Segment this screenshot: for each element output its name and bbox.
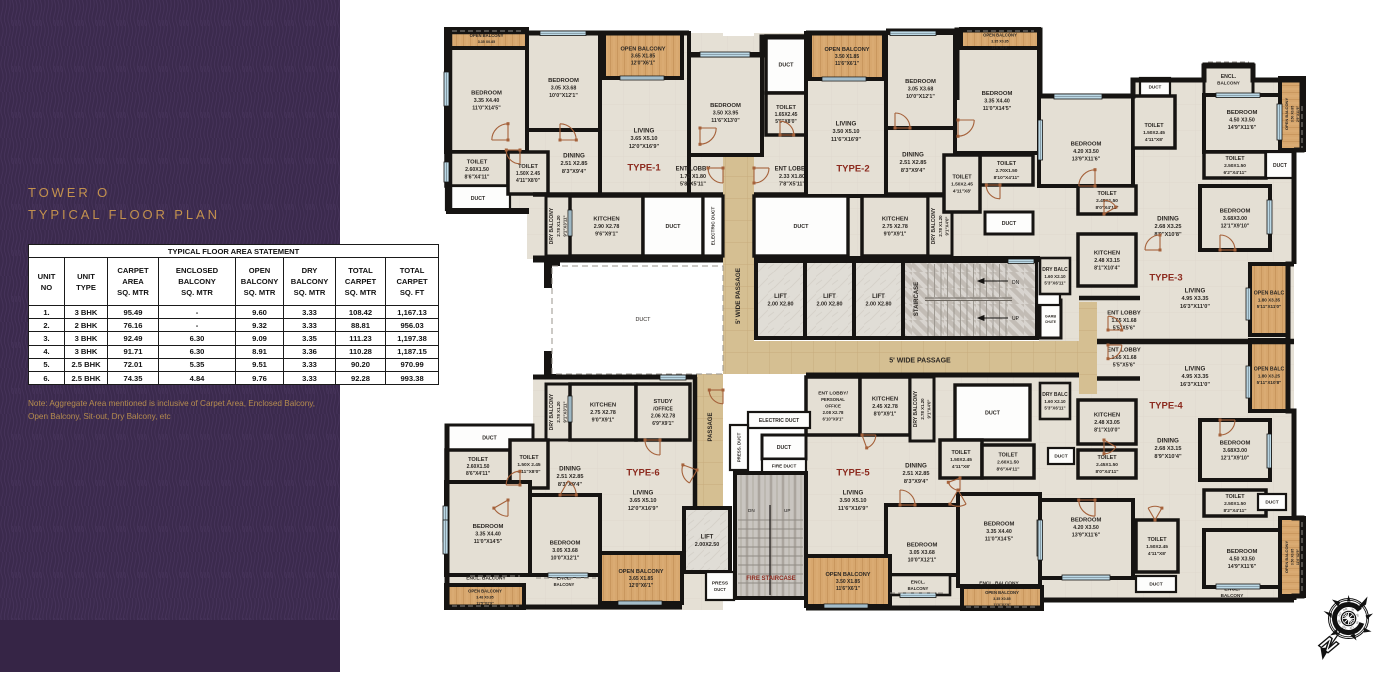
svg-text:KITCHEN2.48 X3.158'1"X10'4": KITCHEN2.48 X3.158'1"X10'4" xyxy=(1094,251,1120,272)
svg-text:DUCT: DUCT xyxy=(794,224,810,230)
svg-text:DUCT: DUCT xyxy=(666,224,682,230)
svg-text:DUCT: DUCT xyxy=(471,196,486,202)
svg-text:TOILET1.50X2.454'11"X8': TOILET1.50X2.454'11"X8' xyxy=(1146,537,1168,557)
svg-text:DUCT: DUCT xyxy=(636,317,652,323)
svg-text:BEDROOM4.50 X3.5014'9"X11'6": BEDROOM4.50 X3.5014'9"X11'6" xyxy=(1227,110,1258,131)
svg-text:DN: DN xyxy=(1012,280,1020,286)
svg-text:BEDROOM3.05 X3.6810'0"X12'1": BEDROOM3.05 X3.6810'0"X12'1" xyxy=(550,541,581,562)
svg-text:BEDROOM4.20 X3.5013'9"X11'6": BEDROOM4.20 X3.5013'9"X11'6" xyxy=(1071,518,1102,539)
svg-text:5' WIDE PASSAGE: 5' WIDE PASSAGE xyxy=(735,267,742,324)
svg-text:TOILET1.50X2.454'11"X8': TOILET1.50X2.454'11"X8' xyxy=(951,174,973,194)
svg-text:BEDROOM3.05 X3.6810'0"X12'1": BEDROOM3.05 X3.6810'0"X12'1" xyxy=(907,543,938,564)
svg-text:DINING2.51 X2.858'3"X9'4": DINING2.51 X2.858'3"X9'4" xyxy=(556,465,583,488)
svg-text:BEDROOM3.05 X3.6810'0"X12'1": BEDROOM3.05 X3.6810'0"X12'1" xyxy=(548,78,579,99)
svg-text:DUCT: DUCT xyxy=(1002,221,1017,227)
svg-text:UP: UP xyxy=(1012,316,1020,322)
svg-text:GARBCHUTE: GARBCHUTE xyxy=(1045,315,1056,324)
svg-text:ELECTRIC DUCT: ELECTRIC DUCT xyxy=(759,418,799,424)
svg-text:KITCHEN2.75 X2.789'0"X9'1": KITCHEN2.75 X2.789'0"X9'1" xyxy=(590,403,616,424)
svg-text:TYPE-4: TYPE-4 xyxy=(1149,400,1183,411)
svg-text:DUCT: DUCT xyxy=(1265,500,1278,506)
svg-text:DINING2.68 X3.158'9"X10'4": DINING2.68 X3.158'9"X10'4" xyxy=(1154,437,1182,460)
svg-text:TOILET2.60X1.508'6"X4'11": TOILET2.60X1.508'6"X4'11" xyxy=(465,160,491,181)
svg-text:TOILET2.50X1.506'2"X4'11": TOILET2.50X1.506'2"X4'11" xyxy=(1223,156,1246,176)
svg-text:TYPE-3: TYPE-3 xyxy=(1149,272,1182,283)
svg-text:KITCHEN2.90 X2.789'6"X9'1": KITCHEN2.90 X2.789'6"X9'1" xyxy=(593,217,619,238)
svg-text:BEDROOM4.20 X3.5013'9"X11'6": BEDROOM4.20 X3.5013'9"X11'6" xyxy=(1071,142,1102,163)
svg-text:5' WIDE PASSAGE: 5' WIDE PASSAGE xyxy=(889,357,951,364)
svg-text:BEDROOM3.35 X4.4011'0"X14'5": BEDROOM3.35 X4.4011'0"X14'5" xyxy=(471,91,502,112)
svg-text:BEDROOM3.50 X3.9511'6"X13'0": BEDROOM3.50 X3.9511'6"X13'0" xyxy=(710,103,741,124)
svg-text:TYPE-5: TYPE-5 xyxy=(836,467,870,478)
svg-text:KITCHEN2.45 X2.788'0"X9'1": KITCHEN2.45 X2.788'0"X9'1" xyxy=(872,397,898,418)
svg-text:TOILET2.50X1.508'2"X4'11": TOILET2.50X1.508'2"X4'11" xyxy=(1223,494,1246,514)
svg-text:DUCT: DUCT xyxy=(482,435,497,441)
svg-text:BEDROOM3.68X3.0012'1"X9'10": BEDROOM3.68X3.0012'1"X9'10" xyxy=(1220,209,1251,230)
svg-text:ELECTRIC DUCT: ELECTRIC DUCT xyxy=(711,207,717,246)
svg-text:TOILET2.45X1.508'0"X4'11": TOILET2.45X1.508'0"X4'11" xyxy=(1095,455,1118,475)
svg-text:DUCT: DUCT xyxy=(1149,85,1162,90)
svg-text:ENT LOBBY1.72 X1.805'8"X5'11": ENT LOBBY1.72 X1.805'8"X5'11" xyxy=(676,167,711,188)
svg-text:TOILET2.60X1.508'6"X4'11": TOILET2.60X1.508'6"X4'11" xyxy=(466,457,491,477)
svg-text:BEDROOM3.68X3.0012'1"X9'10": BEDROOM3.68X3.0012'1"X9'10" xyxy=(1220,441,1251,462)
svg-text:TOILET1.50X2.454'11"X8': TOILET1.50X2.454'11"X8' xyxy=(1143,123,1165,143)
svg-text:TOILET1.50X 2.454'11"X8'0": TOILET1.50X 2.454'11"X8'0" xyxy=(516,164,541,184)
svg-text:STAIRCASE: STAIRCASE xyxy=(914,282,920,316)
svg-text:TOILET2.60X1.508'6"X4'11": TOILET2.60X1.508'6"X4'11" xyxy=(996,452,1019,472)
svg-text:DUCT: DUCT xyxy=(777,445,792,451)
svg-text:BEDROOM3.05 X3.6810'0"X12'1": BEDROOM3.05 X3.6810'0"X12'1" xyxy=(905,79,936,100)
svg-text:DINING2.51 X2.858'3"X9'4": DINING2.51 X2.858'3"X9'4" xyxy=(902,462,929,485)
svg-text:DUCT: DUCT xyxy=(985,410,1001,416)
svg-text:ENCL. BALCONY: ENCL. BALCONY xyxy=(466,576,506,582)
svg-text:BEDROOM4.50 X3.5014'9"X11'6": BEDROOM4.50 X3.5014'9"X11'6" xyxy=(1227,549,1258,570)
svg-text:FIRE DUCT: FIRE DUCT xyxy=(772,464,797,469)
svg-text:UP: UP xyxy=(784,508,790,513)
svg-text:PRESS. DUCT: PRESS. DUCT xyxy=(737,432,742,462)
svg-text:DUCT: DUCT xyxy=(1149,582,1162,588)
svg-text:OPEN BALC1.80 X3.255'11"X10'8": OPEN BALC1.80 X3.255'11"X10'8" xyxy=(1254,367,1285,386)
svg-text:DINING2.51 X2.858'3"X9'4": DINING2.51 X2.858'3"X9'4" xyxy=(560,152,587,175)
svg-text:FIRE STAIRCASE: FIRE STAIRCASE xyxy=(746,576,796,582)
svg-text:DUCT: DUCT xyxy=(1054,454,1067,460)
svg-text:TYPE-2: TYPE-2 xyxy=(836,163,869,174)
svg-text:KITCHEN2.48 X3.058'1"X10'0": KITCHEN2.48 X3.058'1"X10'0" xyxy=(1094,413,1120,434)
svg-text:DUCT: DUCT xyxy=(1273,163,1287,169)
svg-text:TYPE-6: TYPE-6 xyxy=(626,467,659,478)
svg-text:DRY BALC1.60 X2.105'3"X6'11": DRY BALC1.60 X2.105'3"X6'11" xyxy=(1042,267,1068,285)
svg-text:TYPE-1: TYPE-1 xyxy=(627,162,661,173)
svg-text:KITCHEN2.75 X2.789'0"X9'1": KITCHEN2.75 X2.789'0"X9'1" xyxy=(882,217,908,238)
svg-text:PASSAGE: PASSAGE xyxy=(708,413,714,442)
svg-text:TOILET2.70X1.508'10"X4'11": TOILET2.70X1.508'10"X4'11" xyxy=(994,161,1020,181)
svg-text:TOILET1.50X2.454'11"X8': TOILET1.50X2.454'11"X8' xyxy=(950,450,972,470)
svg-text:DINING2.51 X2.858'3"X9'4": DINING2.51 X2.858'3"X9'4" xyxy=(899,151,926,174)
svg-text:BEDROOM3.35 X4.4011'0"X14'5": BEDROOM3.35 X4.4011'0"X14'5" xyxy=(984,522,1015,543)
svg-text:OPEN BALC1.80 X3.355'11"X11'0": OPEN BALC1.80 X3.355'11"X11'0" xyxy=(1254,291,1285,310)
svg-text:BEDROOM3.35 X4.4011'0"X14'5": BEDROOM3.35 X4.4011'0"X14'5" xyxy=(473,524,504,545)
svg-text:STUDY/OFFICE2.06 X2.786'9"X9'1: STUDY/OFFICE2.06 X2.786'9"X9'1" xyxy=(651,399,675,427)
svg-text:DN: DN xyxy=(748,508,755,513)
svg-text:DUCT: DUCT xyxy=(779,62,795,68)
svg-text:BEDROOM3.35 X4.4011'0"X14'5": BEDROOM3.35 X4.4011'0"X14'5" xyxy=(982,91,1013,112)
svg-text:DRY BALC1.60 X2.105'3"X6'11": DRY BALC1.60 X2.105'3"X6'11" xyxy=(1042,392,1068,410)
